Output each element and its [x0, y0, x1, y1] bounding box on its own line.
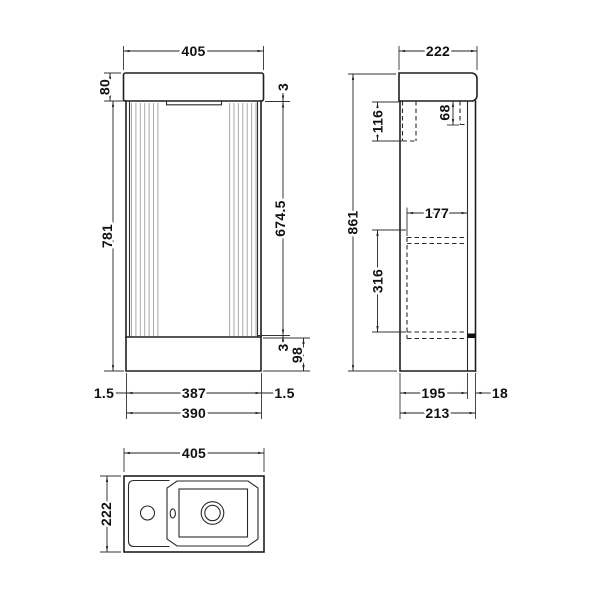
side-hidden-shelf — [407, 238, 468, 339]
dim-front-plinth-height: 98 — [289, 347, 305, 363]
plan-view: 405 222 — [98, 445, 264, 552]
dim-side-base-depth: 213 — [425, 405, 449, 421]
dim-side-shelf-depth: 177 — [425, 205, 449, 221]
plan-bowl-rim — [167, 481, 258, 546]
dim-side-shelf-clearance: 316 — [369, 269, 385, 293]
side-view: 222 861 116 68 177 316 195 18 213 — [344, 43, 508, 421]
dim-side-front-rail: 68 — [436, 104, 452, 120]
side-hidden-back-rail — [403, 101, 417, 141]
dim-side-carcass-depth: 195 — [421, 385, 445, 401]
side-hidden-front-rail — [460, 101, 468, 125]
side-dimension-lines — [353, 51, 491, 413]
dim-front-door-height: 674.5 — [272, 200, 288, 237]
plan-tap-hole — [141, 506, 155, 520]
plan-bowl-floor — [179, 489, 248, 537]
plan-worktop-outline — [124, 476, 264, 552]
dim-plan-overall-width: 405 — [182, 445, 206, 461]
front-basin-top — [124, 73, 264, 101]
dim-front-overall-width: 405 — [181, 43, 205, 59]
front-view: 405 80 781 3 674.5 3 98 1.5 387 1.5 390 — [94, 43, 310, 421]
dim-side-overall-depth: 222 — [426, 43, 450, 59]
plan-drain — [201, 502, 224, 525]
plan-tap-deck — [129, 481, 170, 547]
technical-drawing-vanity-unit: 405 80 781 3 674.5 3 98 1.5 387 1.5 390 — [0, 0, 602, 602]
side-basin-top — [399, 73, 477, 101]
front-handle-recess — [167, 102, 222, 105]
plan-overflow-slot — [170, 509, 175, 518]
dim-front-internal-width: 387 — [182, 385, 206, 401]
front-flutes-right — [230, 103, 256, 336]
dim-front-worktop-height: 80 — [96, 79, 112, 95]
dim-front-cabinet-width: 390 — [182, 405, 206, 421]
dim-front-side-left: 1.5 — [94, 385, 114, 401]
front-cabinet-outline — [126, 101, 261, 371]
front-flutes-left — [132, 103, 158, 336]
dim-plan-overall-depth: 222 — [98, 502, 114, 526]
dim-side-door-thickness: 18 — [492, 385, 508, 401]
drawing-canvas: 405 80 781 3 674.5 3 98 1.5 387 1.5 390 — [0, 0, 602, 602]
side-extension-lines — [348, 46, 477, 419]
dim-front-side-right: 1.5 — [274, 385, 294, 401]
dim-front-top-gap: 3 — [275, 83, 291, 91]
dim-side-back-rail: 116 — [369, 110, 385, 134]
side-door-bottom-gap — [468, 334, 476, 339]
dim-front-cabinet-height: 781 — [99, 224, 115, 248]
dim-side-overall-height: 861 — [344, 210, 360, 234]
